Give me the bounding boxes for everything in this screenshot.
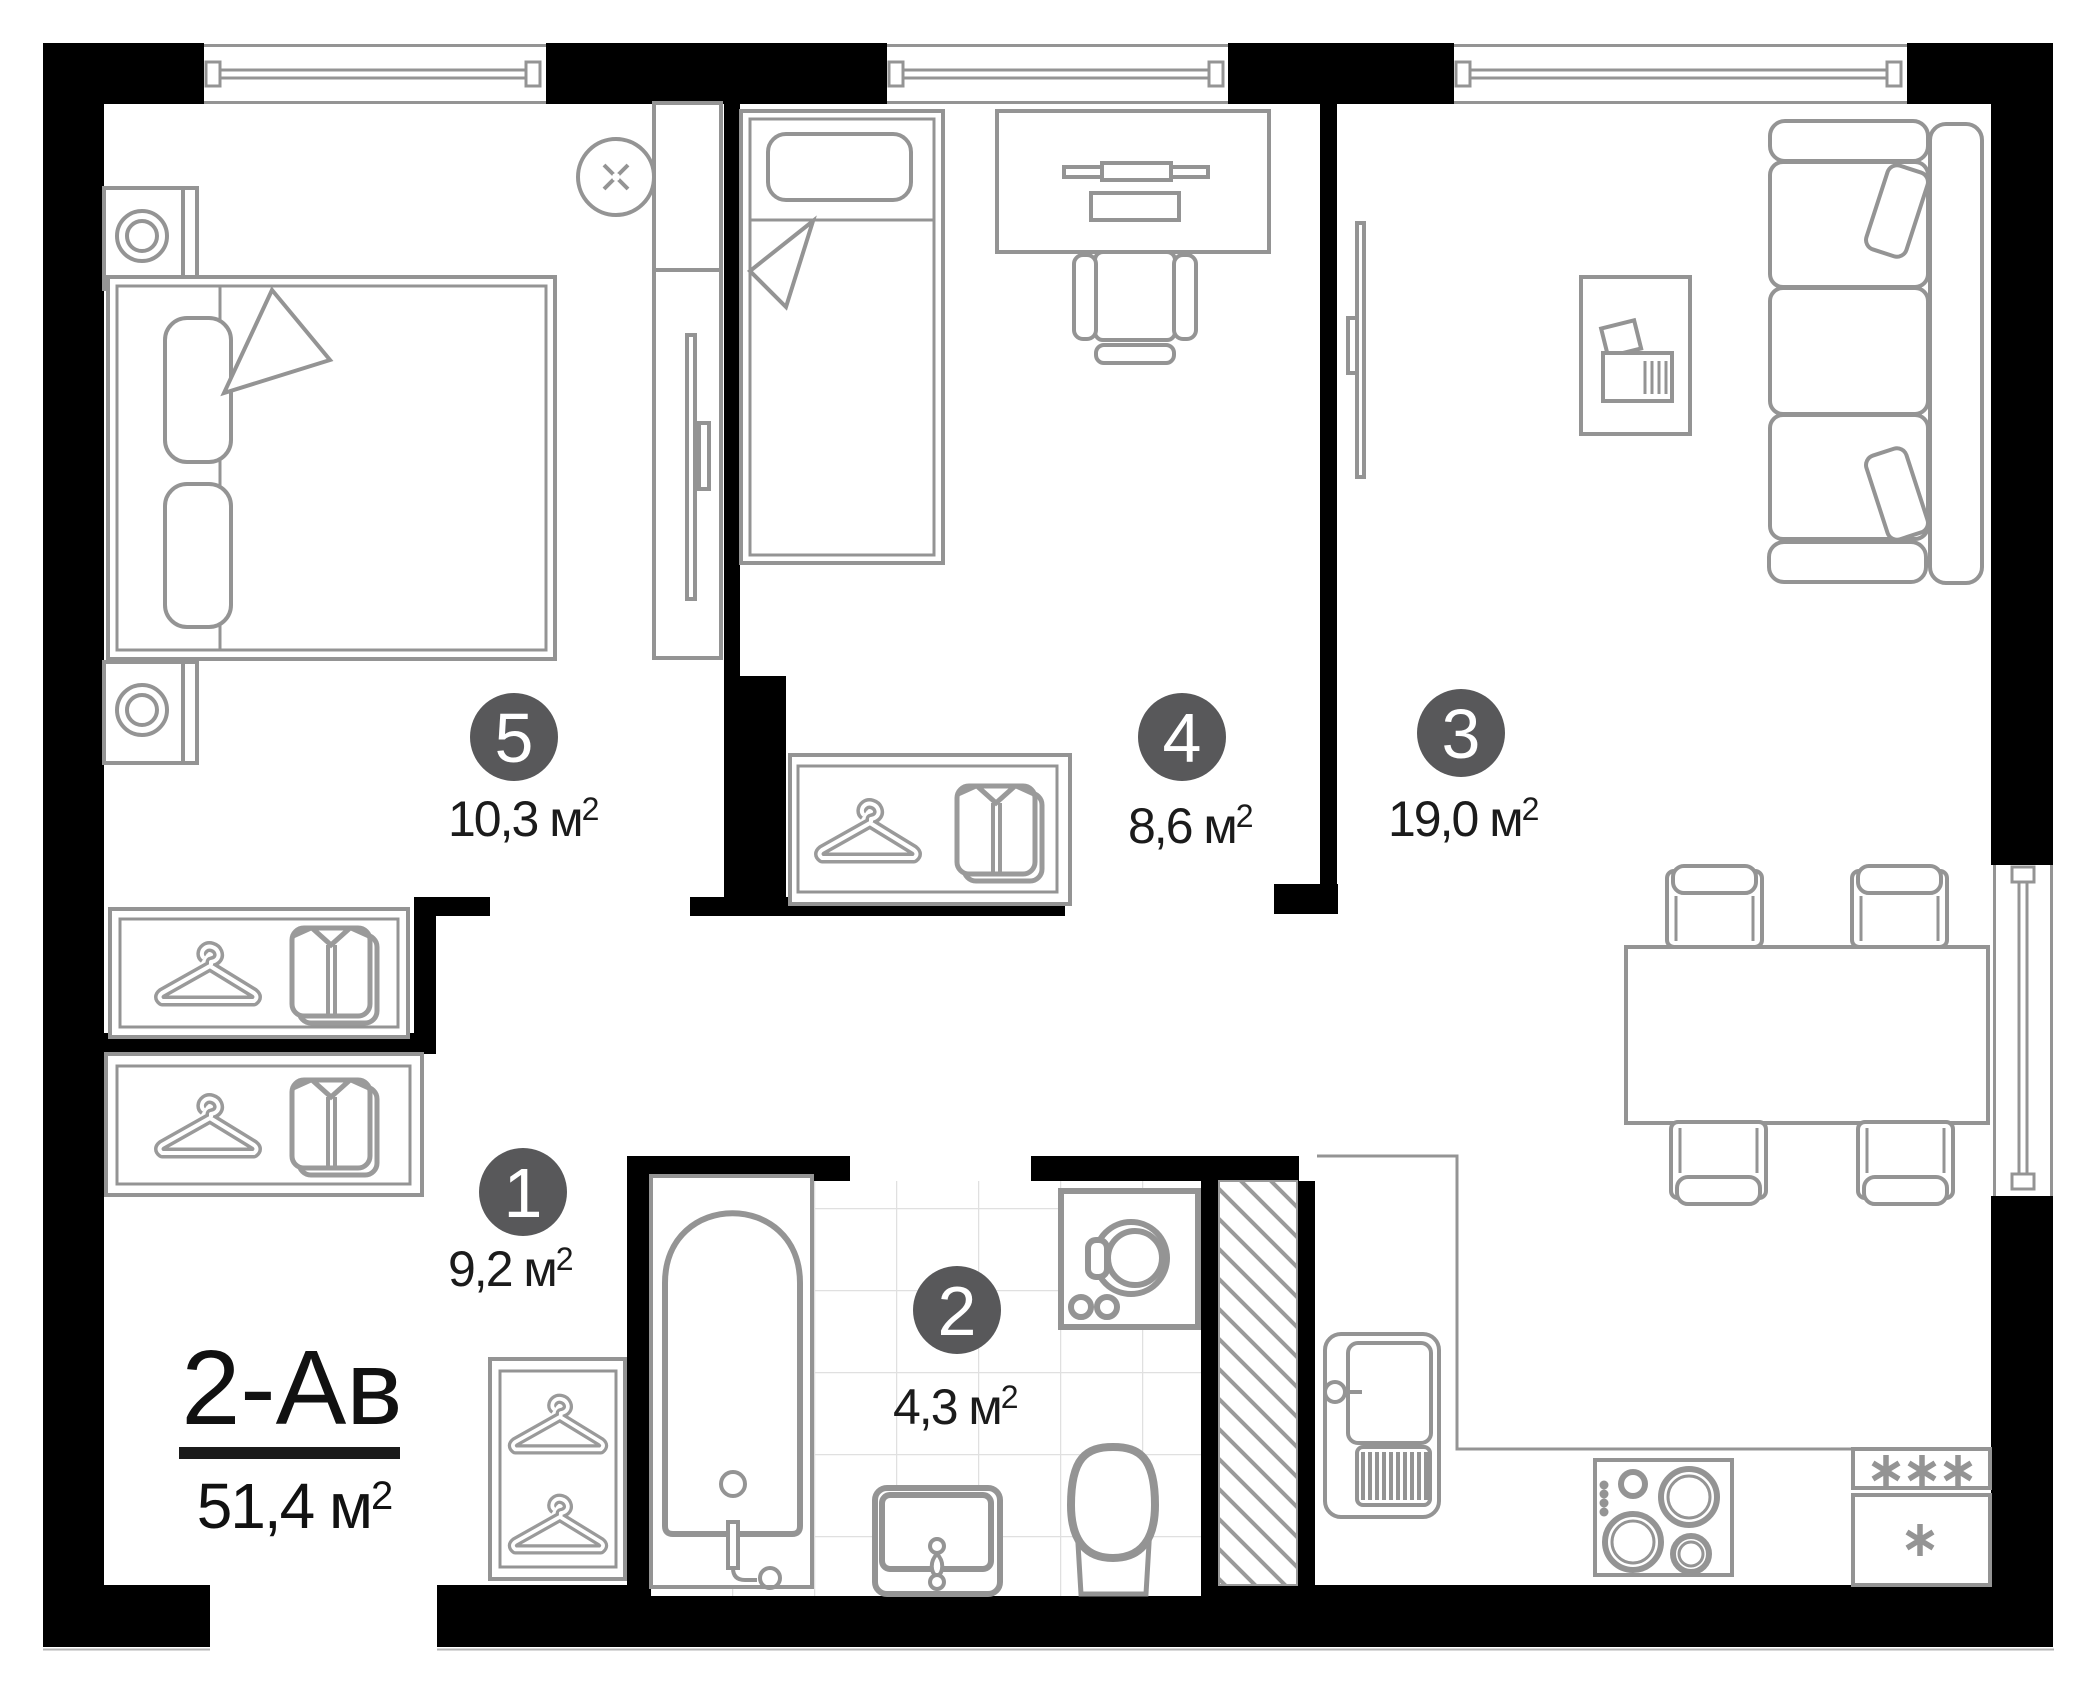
svg-text:1: 1 xyxy=(504,1154,543,1232)
svg-text:2: 2 xyxy=(938,1272,977,1350)
svg-text:3: 3 xyxy=(1442,695,1481,773)
svg-text:51,4 м2: 51,4 м2 xyxy=(197,1470,392,1542)
svg-text:10,3 м2: 10,3 м2 xyxy=(448,791,599,847)
svg-text:4,3 м2: 4,3 м2 xyxy=(893,1379,1018,1435)
svg-text:5: 5 xyxy=(495,699,534,777)
svg-text:9,2 м2: 9,2 м2 xyxy=(448,1241,573,1297)
svg-text:8,6 м2: 8,6 м2 xyxy=(1128,798,1253,854)
svg-text:4: 4 xyxy=(1163,699,1202,777)
svg-text:19,0 м2: 19,0 м2 xyxy=(1388,791,1539,847)
svg-text:2-Ав: 2-Ав xyxy=(181,1329,402,1447)
